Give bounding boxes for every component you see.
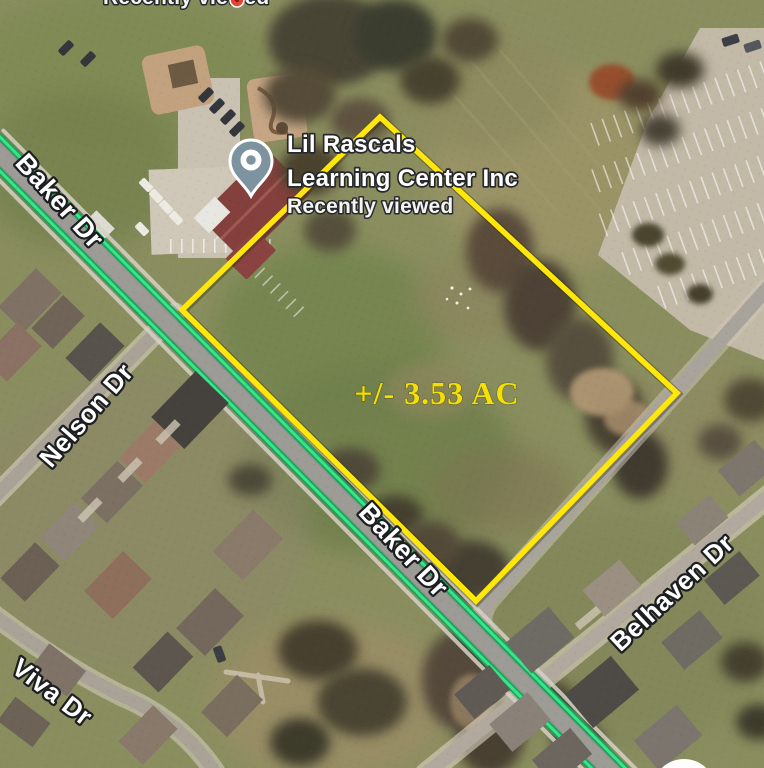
red-pin-icon[interactable] (230, 0, 244, 7)
satellite-map[interactable]: +/- 3.53 AC Baker Dr Baker Dr Nelson Dr … (0, 0, 764, 768)
parcel-area-label: +/- 3.53 AC (354, 375, 519, 411)
poi-name-line2[interactable]: Learning Center Inc (287, 165, 518, 192)
poi-status: Recently viewed (287, 195, 453, 218)
map-canvas[interactable]: +/- 3.53 AC Baker Dr Baker Dr Nelson Dr … (0, 0, 764, 768)
poi-name-line1[interactable]: Lil Rascals (287, 131, 416, 158)
